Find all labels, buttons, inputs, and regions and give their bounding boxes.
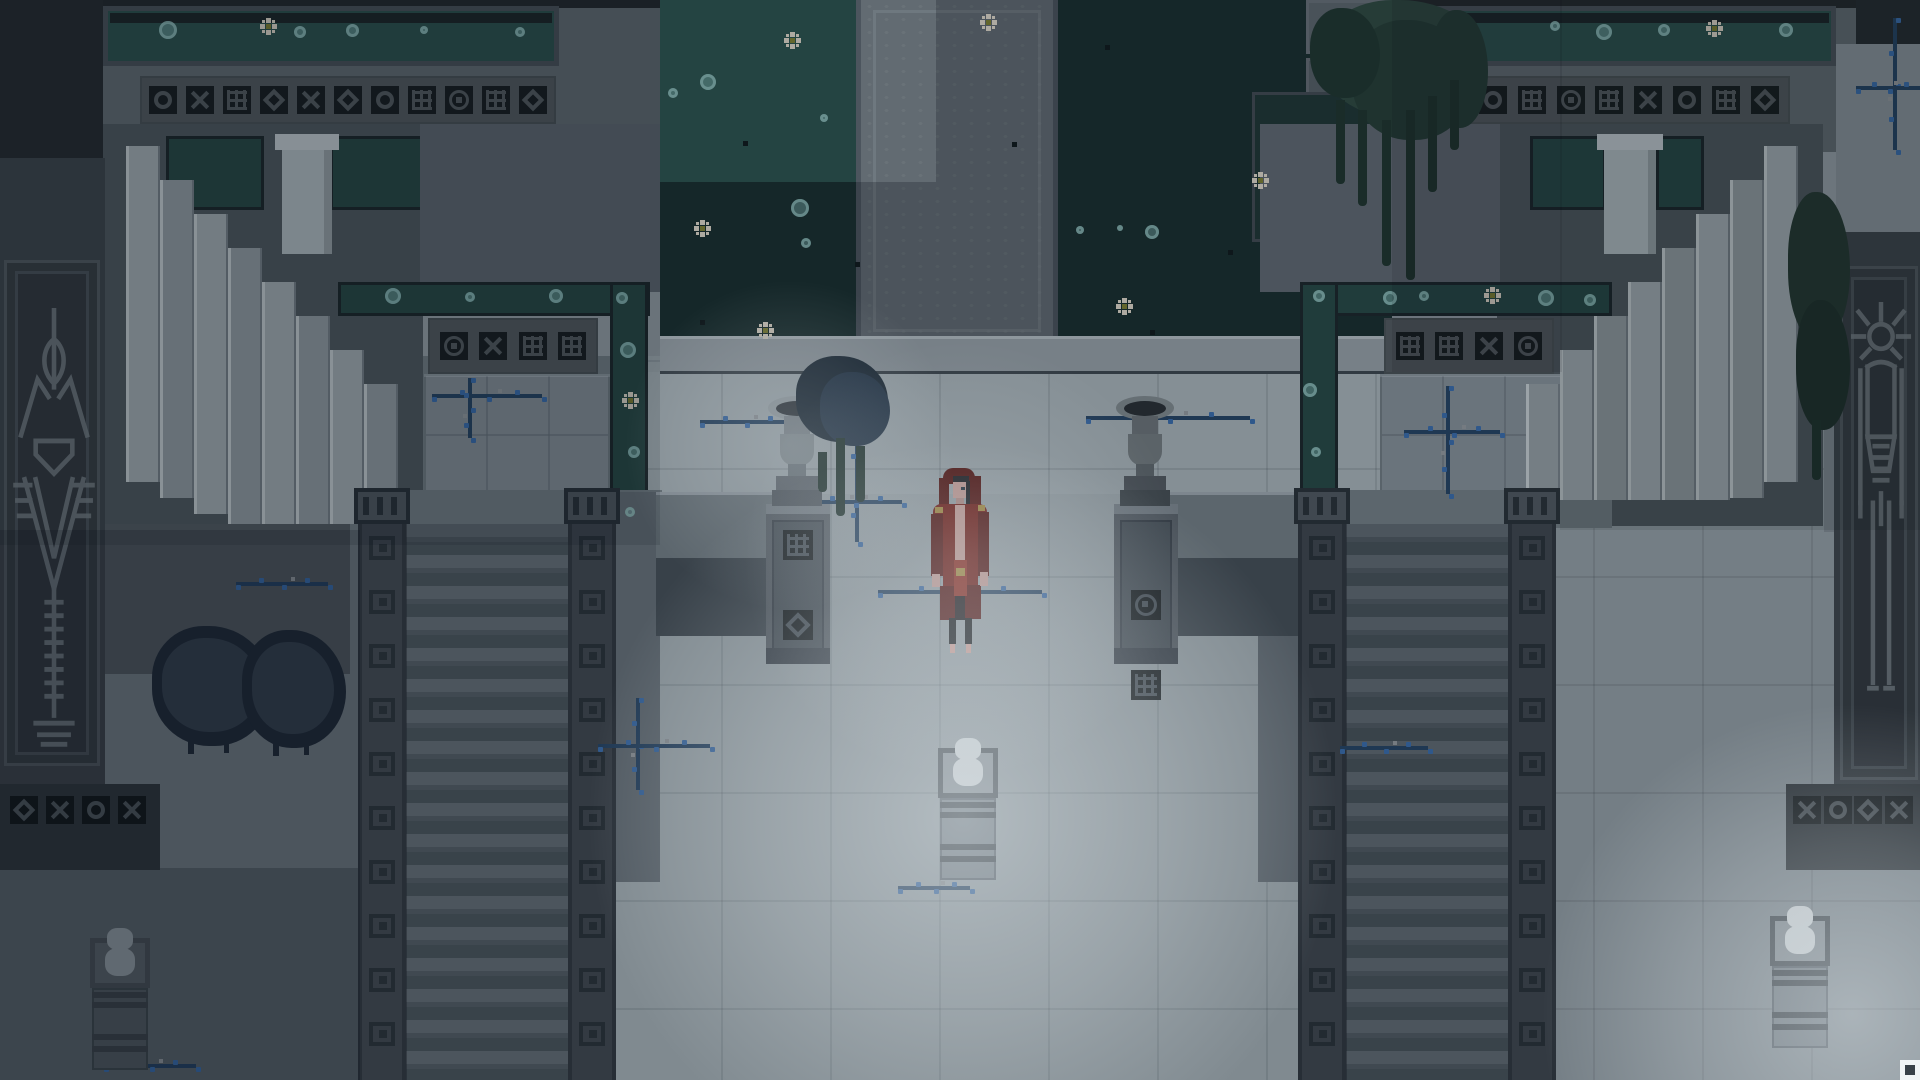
shade-pool-east bbox=[1392, 0, 1562, 372]
shade-north-west bbox=[0, 0, 660, 545]
game-viewport[interactable] bbox=[0, 0, 1920, 1080]
corner-prompt-marker[interactable] bbox=[1900, 1060, 1920, 1080]
shade-north-east bbox=[1560, 0, 1920, 530]
shade-south-west bbox=[0, 530, 360, 1080]
